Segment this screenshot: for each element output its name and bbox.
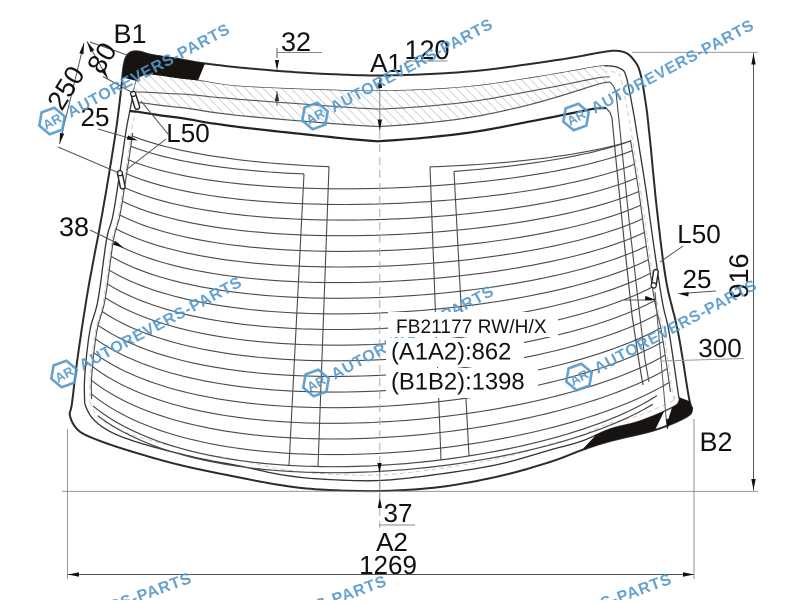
svg-text:38: 38 <box>59 212 89 242</box>
svg-text:(B1B2):1398: (B1B2):1398 <box>391 369 525 396</box>
svg-text:FB21177 RW/H/X: FB21177 RW/H/X <box>396 317 547 338</box>
svg-text:B2: B2 <box>699 427 732 457</box>
svg-text:L50: L50 <box>677 219 720 249</box>
svg-text:1269: 1269 <box>359 550 417 580</box>
svg-text:37: 37 <box>384 498 413 528</box>
svg-text:(A1A2):862: (A1A2):862 <box>391 339 511 366</box>
svg-text:L50: L50 <box>166 118 209 148</box>
svg-text:B1: B1 <box>113 19 146 49</box>
svg-text:25: 25 <box>683 264 712 294</box>
